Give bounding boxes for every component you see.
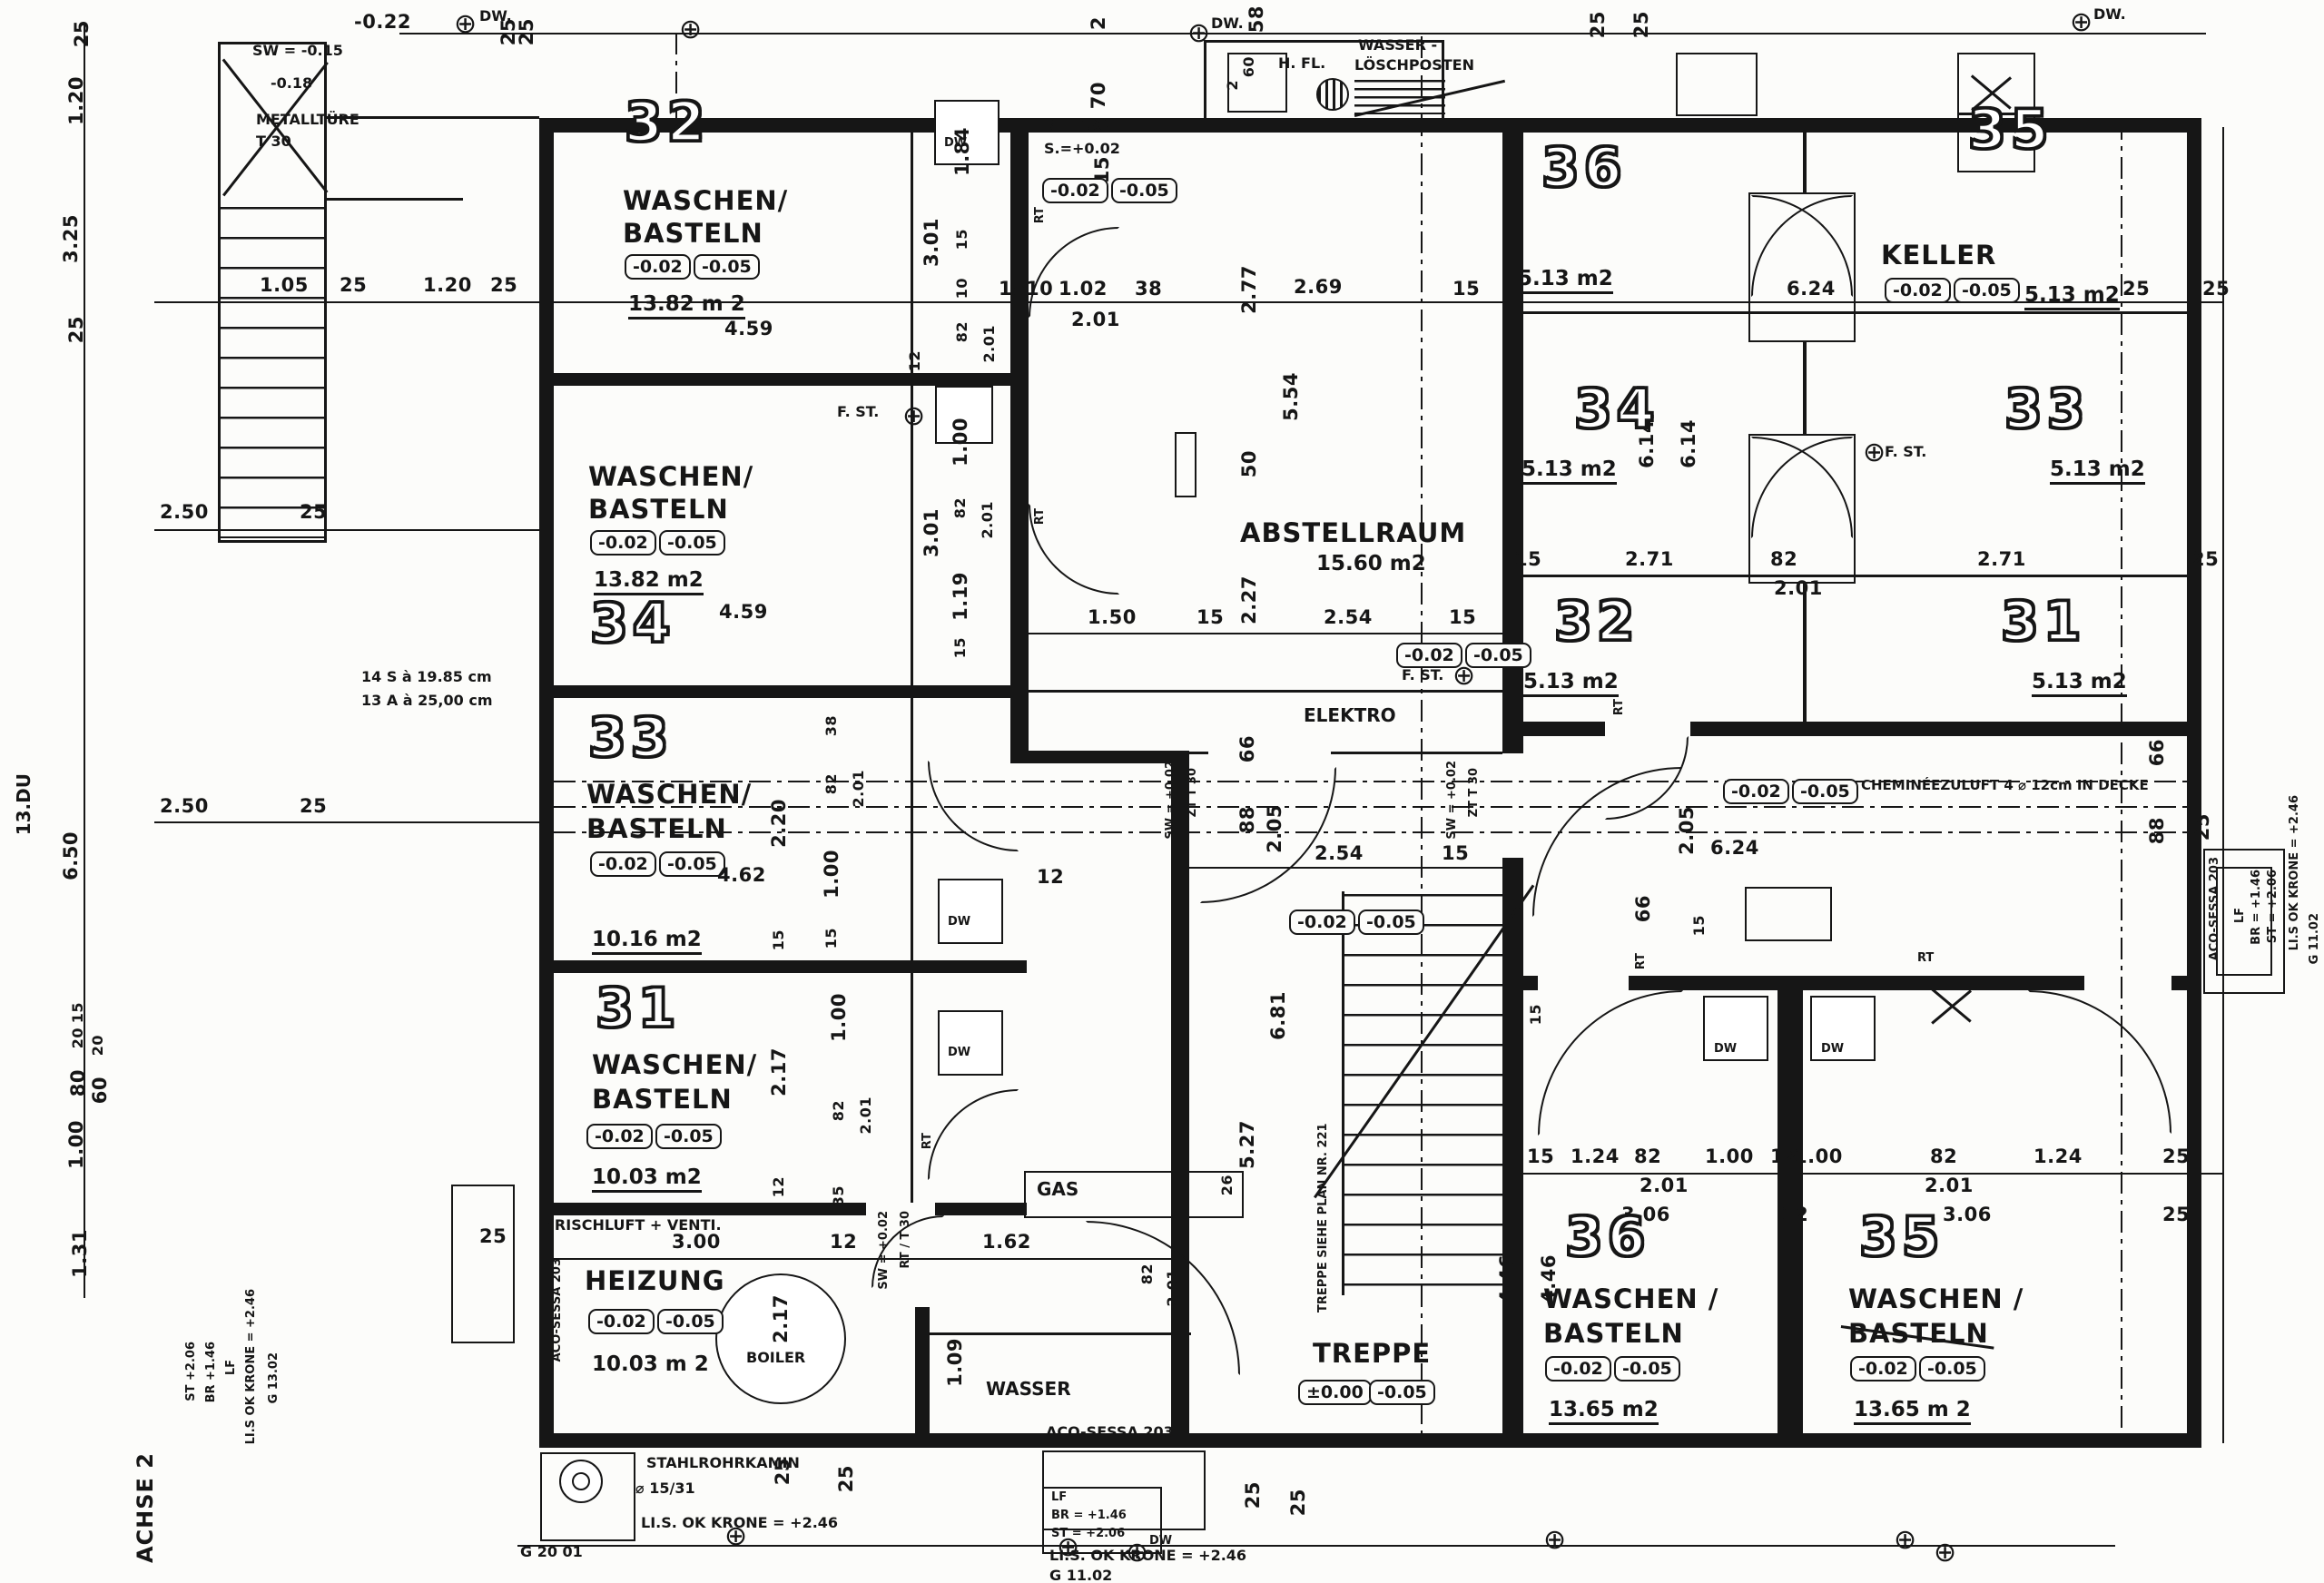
room-name: WASCHEN / bbox=[1543, 1283, 1718, 1314]
door-label: RT bbox=[1612, 699, 1626, 715]
dw-label: DW bbox=[1149, 1534, 1172, 1548]
benchmark-icon: ⊕ bbox=[1543, 1529, 1566, 1552]
room-name: BASTELN bbox=[1848, 1318, 1989, 1349]
dim-label: 15 bbox=[1527, 1145, 1554, 1167]
dim-label: 25 bbox=[2202, 278, 2230, 300]
wall bbox=[1629, 976, 2084, 990]
level-badge: -0.05 bbox=[659, 530, 725, 556]
dim-label: 15 bbox=[1196, 606, 1224, 628]
dim-label: 4.46 bbox=[1496, 1254, 1518, 1303]
dim-label: 1.05 bbox=[260, 274, 309, 296]
partition bbox=[911, 133, 913, 1203]
dim-label: 70 bbox=[1088, 82, 1109, 109]
dim-label: 25 bbox=[479, 1225, 507, 1247]
dim-label: 1.24 bbox=[2033, 1145, 2083, 1167]
dim-label: 2.01 bbox=[979, 501, 996, 538]
partition bbox=[1027, 690, 1502, 693]
appliance-label: DW bbox=[948, 1046, 970, 1059]
dim-label: 25 bbox=[300, 795, 327, 817]
bay-wall bbox=[1204, 40, 1206, 118]
dim-label: 15 bbox=[999, 278, 1026, 300]
room-name: BASTELN bbox=[1543, 1318, 1684, 1349]
dim-label: 20 bbox=[69, 1027, 86, 1048]
wall bbox=[1690, 722, 2187, 736]
wall bbox=[539, 1433, 2201, 1448]
dim-label: 15 bbox=[69, 1002, 86, 1023]
dim-label: 1.31 bbox=[69, 1229, 91, 1278]
dim-label: 2.71 bbox=[1625, 548, 1674, 570]
shaft-note: LF bbox=[2233, 908, 2247, 923]
dim-label: 6.50 bbox=[60, 831, 82, 880]
dim-line bbox=[154, 821, 539, 823]
shaft-note: BR +1.46 bbox=[204, 1342, 218, 1402]
stair-edge bbox=[1342, 891, 1344, 1295]
level-note: -0.22 bbox=[354, 11, 411, 33]
benchmark-icon: ⊕ bbox=[1894, 1529, 1916, 1552]
dim-label: 15 bbox=[953, 229, 970, 250]
stair-treads bbox=[221, 207, 324, 538]
dim-label: 6.81 bbox=[1267, 991, 1289, 1040]
door-label: SW = +0.02 bbox=[877, 1211, 891, 1290]
room-name: WASCHEN / bbox=[1848, 1283, 2024, 1314]
shaft-note: BR = +1.46 bbox=[2250, 870, 2263, 945]
dim-label: 26 bbox=[1218, 1175, 1236, 1195]
drain-icon bbox=[572, 1472, 590, 1490]
dim-label: 2.50 bbox=[160, 501, 209, 523]
dim-label: 88 bbox=[2146, 817, 2168, 844]
dim-label: 10 bbox=[1026, 278, 1053, 300]
level-badge: -0.02 bbox=[1289, 909, 1355, 935]
grid-ref: G 11.02 bbox=[1049, 1567, 1112, 1583]
dim-label: 1.00 bbox=[821, 850, 842, 899]
wall bbox=[2187, 118, 2201, 1448]
wall bbox=[539, 118, 554, 1448]
dim-label: 2.27 bbox=[1238, 575, 1260, 624]
dim-label: 25 bbox=[71, 20, 93, 47]
room-name: WASCHEN/ bbox=[623, 185, 788, 216]
dim-label: 15 bbox=[1449, 606, 1476, 628]
room-number: 31 bbox=[596, 977, 681, 1040]
wall bbox=[539, 118, 2201, 133]
dim-label: 25 bbox=[1587, 11, 1609, 38]
dim-label: 2 bbox=[1088, 16, 1109, 30]
floor-plan: ⊕ ⊕ ⊕ ⊕ ⊕ ⊕ ⊕ ⊕ ⊕ ⊕ ⊕ ⊕ ⊕ 25 1.20 3.25 2… bbox=[0, 0, 2324, 1583]
room-area: 15.60 m2 bbox=[1316, 552, 1426, 575]
fixture-note: LÖSCHPOSTEN bbox=[1354, 56, 1474, 74]
dim-label: 25 bbox=[2162, 1204, 2190, 1225]
dim-label: 2.01 bbox=[1925, 1175, 1974, 1196]
door-arc bbox=[1029, 227, 1119, 318]
room-number: 34 bbox=[590, 592, 675, 655]
appliance-label: DW bbox=[1714, 1042, 1737, 1056]
fixture-note: H. FL. bbox=[1278, 54, 1325, 72]
appliance-label: DW bbox=[948, 915, 970, 929]
shaft-note: G 13.02 bbox=[267, 1352, 281, 1403]
dim-label: 12 bbox=[1037, 866, 1064, 888]
dim-label: 12 bbox=[770, 1176, 787, 1197]
dim-label: 2.71 bbox=[1977, 548, 2026, 570]
product-note: ACO-SESSA 203 bbox=[2208, 857, 2221, 960]
dim-label: 3.25 bbox=[60, 214, 82, 263]
dim-label: 5.54 bbox=[1280, 372, 1302, 421]
room-number: 32 bbox=[1554, 590, 1640, 654]
dim-line bbox=[517, 1545, 2115, 1547]
duct-line bbox=[554, 831, 2187, 833]
door-label: ZT T 30 bbox=[1467, 768, 1481, 817]
room-number: 35 bbox=[1968, 98, 2053, 162]
dim-label: 2.17 bbox=[768, 1047, 790, 1096]
dim-label: 1.00 bbox=[1794, 1145, 1843, 1167]
dim-label: 2.01 bbox=[1071, 309, 1120, 330]
room-area: 5.13 m2 bbox=[2024, 283, 2120, 310]
benchmark-icon: ⊕ bbox=[2070, 11, 2093, 34]
level-badge: -0.05 bbox=[1792, 779, 1858, 804]
partition bbox=[1803, 133, 1807, 192]
room-area: 10.16 m2 bbox=[592, 928, 702, 955]
room-area: 10.03 m 2 bbox=[592, 1352, 709, 1376]
dim-label: 66 bbox=[1236, 735, 1258, 762]
dim-line bbox=[2222, 127, 2224, 1443]
dim-label: 25 bbox=[835, 1465, 857, 1492]
dim-label: 3.00 bbox=[672, 1231, 721, 1253]
dim-label: 5.27 bbox=[1236, 1120, 1258, 1169]
room-number: 32 bbox=[625, 91, 710, 154]
dim-label: 66 bbox=[2146, 739, 2168, 766]
level-badge: -0.02 bbox=[1396, 643, 1462, 668]
level-badge: -0.05 bbox=[1919, 1356, 1985, 1381]
dim-line bbox=[1027, 633, 1502, 634]
room-area: 5.13 m2 bbox=[2050, 457, 2145, 485]
level-note: LI.S OK KRONE = +2.46 bbox=[2288, 795, 2301, 950]
door-label: SW = +0.02 bbox=[1164, 761, 1177, 840]
dim-label: 15 bbox=[1690, 915, 1708, 936]
duct-line bbox=[554, 806, 2187, 808]
wall bbox=[539, 960, 1027, 973]
room-name: ELEKTRO bbox=[1304, 704, 1396, 726]
benchmark-icon: ⊕ bbox=[1187, 22, 1210, 45]
dim-label: 2.05 bbox=[1264, 804, 1285, 853]
chimney-note: ⌀ 15/31 bbox=[635, 1480, 695, 1497]
dim-label: 1.00 bbox=[65, 1120, 87, 1169]
dim-label: 1.09 bbox=[944, 1338, 966, 1387]
level-badge: -0.02 bbox=[1042, 178, 1108, 203]
dim-label: 6.24 bbox=[1787, 278, 1836, 300]
dim-label: 38 bbox=[1135, 278, 1162, 300]
level-badge: -0.05 bbox=[657, 1309, 724, 1334]
wall bbox=[1523, 976, 1538, 990]
axis-label: ACHSE 2 bbox=[133, 1452, 158, 1563]
partition bbox=[1803, 342, 1807, 434]
dim-label: 2.77 bbox=[1238, 265, 1260, 314]
level-badge: -0.02 bbox=[625, 254, 691, 280]
dim-label: 60 bbox=[89, 1077, 111, 1104]
dw-label: DW. bbox=[2093, 5, 2126, 23]
wall bbox=[539, 1203, 866, 1215]
level-badge: -0.05 bbox=[694, 254, 760, 280]
level-note: LI.S. OK KRONE = +2.46 bbox=[1049, 1547, 1246, 1564]
room-name: WASSER bbox=[986, 1378, 1071, 1400]
wall bbox=[1502, 858, 1523, 1448]
room-area: 13.82 m 2 bbox=[628, 292, 745, 320]
dim-label: 38 bbox=[822, 715, 840, 736]
level-badge: -0.02 bbox=[590, 851, 656, 877]
vent-shaft bbox=[1745, 887, 1832, 941]
wall bbox=[539, 373, 1027, 386]
dim-label: 15 bbox=[951, 637, 969, 658]
dim-label: 20 bbox=[89, 1035, 106, 1056]
dim-label: 3.06 bbox=[1943, 1204, 1992, 1225]
dim-label: 2.17 bbox=[770, 1294, 792, 1343]
dim-line bbox=[1507, 1173, 2222, 1175]
dim-label: 2.05 bbox=[1676, 806, 1698, 855]
hydrant-icon bbox=[1316, 78, 1349, 111]
shaft-note: ST = +2.06 bbox=[1051, 1527, 1125, 1540]
dim-label: 12 bbox=[1781, 1204, 1808, 1225]
room-area: 5.13 m2 bbox=[1523, 670, 1619, 697]
dim-label: 82 bbox=[830, 1100, 847, 1121]
stair-note: 14 S à 19.85 cm bbox=[361, 668, 492, 685]
partition bbox=[1331, 752, 1502, 754]
dim-label: 12 bbox=[830, 1231, 857, 1253]
room-number: 36 bbox=[1565, 1205, 1650, 1269]
dim-label: 15 bbox=[770, 929, 787, 950]
level-badge: ±0.00 bbox=[1298, 1380, 1372, 1405]
door-note: METALLTÜRE bbox=[256, 111, 359, 128]
room-name: BASTELN bbox=[592, 1084, 733, 1115]
level-badge: -0.05 bbox=[659, 851, 725, 877]
room-number: 31 bbox=[2001, 590, 2086, 654]
dim-label: 2.01 bbox=[1774, 577, 1823, 599]
benchmark-icon: ⊕ bbox=[679, 18, 702, 42]
dim-label: 25 bbox=[2162, 1145, 2190, 1167]
room-area: 5.13 m2 bbox=[1518, 267, 1613, 294]
dim-label: 66 bbox=[1632, 895, 1654, 922]
level-note: S.=+0.02 bbox=[1044, 140, 1120, 157]
appliance-label: DW bbox=[1821, 1042, 1844, 1056]
dim-label: 1.00 bbox=[828, 993, 850, 1042]
shaft-note: ST +2.06 bbox=[184, 1342, 198, 1401]
level-note: LI.S. OK KRONE = +2.46 bbox=[641, 1514, 838, 1531]
dim-label: 82 bbox=[1138, 1263, 1156, 1284]
room-name: BASTELN bbox=[588, 494, 729, 525]
door-label: ZT T 30 bbox=[1186, 768, 1199, 817]
dim-label: 4.59 bbox=[724, 318, 773, 339]
washing-machine bbox=[938, 1010, 1003, 1076]
dim-label: 35 bbox=[830, 1185, 847, 1206]
door-label: RT bbox=[1033, 508, 1047, 525]
room-name: GAS bbox=[1037, 1178, 1078, 1200]
level-badge: -0.05 bbox=[655, 1124, 722, 1149]
dim-label: 25 bbox=[2191, 548, 2219, 570]
dim-label: 3.01 bbox=[921, 508, 942, 557]
dim-label: 1.24 bbox=[1571, 1145, 1620, 1167]
dim-line bbox=[84, 25, 85, 1298]
dim-label: 2.20 bbox=[768, 799, 790, 848]
fixture-note: WASSER - bbox=[1358, 36, 1437, 54]
benchmark-icon: ⊕ bbox=[1863, 441, 1886, 465]
dim-label: 2.69 bbox=[1294, 276, 1343, 298]
dim-label: 10 bbox=[953, 278, 970, 299]
dim-label: 25 bbox=[340, 274, 367, 296]
stair-treads bbox=[1344, 894, 1502, 1293]
dim-label: 2.01 bbox=[1164, 1269, 1181, 1306]
benchmark-icon: ⊕ bbox=[902, 405, 925, 428]
room-area: 10.03 m2 bbox=[592, 1165, 702, 1193]
door-arc bbox=[1086, 1221, 1240, 1375]
dim-label: 82 bbox=[822, 773, 840, 794]
level-badge: -0.02 bbox=[586, 1124, 653, 1149]
annex-wall bbox=[218, 540, 327, 543]
door-note: T 30 bbox=[256, 133, 291, 150]
fst-label: F. ST. bbox=[1402, 666, 1443, 683]
shaft-note: LF bbox=[224, 1360, 238, 1375]
room-area: 13.65 m2 bbox=[1549, 1398, 1659, 1425]
level-note: -0.18 bbox=[271, 74, 312, 92]
dim-label: 80 bbox=[67, 1069, 89, 1096]
dim-label: 82 bbox=[953, 321, 970, 342]
dim-label: 50 bbox=[1238, 450, 1260, 477]
dim-label: 2.01 bbox=[850, 770, 867, 807]
product-note: ACO-SESSA 203 bbox=[550, 1258, 564, 1362]
level-badge: -0.02 bbox=[588, 1309, 655, 1334]
product-note: ACO-SESSA 203 bbox=[1046, 1423, 1174, 1440]
dim-label: 58 bbox=[1246, 5, 1267, 33]
dim-label: 25 bbox=[2191, 813, 2213, 841]
door-note: RT. T 30 bbox=[1044, 116, 1108, 133]
wall bbox=[2171, 976, 2187, 990]
room-number: 36 bbox=[1541, 136, 1627, 200]
door-label: RT bbox=[1917, 951, 1934, 965]
grid-ref: G 20 01 bbox=[520, 1543, 583, 1560]
dim-label: 15 bbox=[1442, 842, 1469, 864]
room-number: 34 bbox=[1574, 378, 1659, 441]
level-badge: -0.02 bbox=[1850, 1356, 1916, 1381]
dim-label: 82 bbox=[1770, 548, 1797, 570]
dim-label: 12 bbox=[906, 350, 923, 371]
dim-label: 82 bbox=[951, 497, 969, 518]
dim-label: 2.54 bbox=[1315, 842, 1364, 864]
level-badge: -0.05 bbox=[1111, 178, 1177, 203]
level-badge: -0.02 bbox=[1885, 278, 1951, 303]
dim-label: 15 bbox=[1452, 278, 1480, 300]
level-badge: -0.02 bbox=[590, 530, 656, 556]
door-label: RT bbox=[921, 1133, 934, 1149]
door-label: RT bbox=[1033, 207, 1047, 223]
dim-label: 2.54 bbox=[1324, 606, 1373, 628]
dim-label: 2.01 bbox=[980, 325, 998, 362]
dim-label: 1.50 bbox=[1088, 606, 1137, 628]
dim-label: 25 bbox=[1242, 1481, 1264, 1509]
wall bbox=[915, 1307, 930, 1433]
level-badge: -0.05 bbox=[1369, 1380, 1435, 1405]
dim-label: 2 bbox=[1224, 80, 1241, 91]
dim-label: 15 bbox=[1514, 548, 1541, 570]
dim-label: 6.14 bbox=[1678, 419, 1699, 468]
wall bbox=[1523, 722, 1605, 736]
room-name: BASTELN bbox=[623, 218, 763, 249]
level-badge: -0.05 bbox=[1465, 643, 1531, 668]
shaft-note: ST = +2.06 bbox=[2266, 870, 2280, 943]
level-note: SW = -0.15 bbox=[252, 42, 343, 59]
dim-label: 82 bbox=[1634, 1145, 1661, 1167]
dim-label: 1.00 bbox=[950, 418, 971, 467]
door-arc bbox=[928, 1089, 1019, 1180]
grid-ref: G 11.02 bbox=[2308, 913, 2321, 964]
level-badge: -0.02 bbox=[1723, 779, 1789, 804]
dim-label: 1.00 bbox=[1705, 1145, 1754, 1167]
light-shaft bbox=[451, 1185, 515, 1343]
door-label: RT / T 30 bbox=[899, 1211, 912, 1269]
dim-label: 2.01 bbox=[1640, 1175, 1689, 1196]
room-area: 5.13 m2 bbox=[1521, 457, 1617, 485]
vent-shaft bbox=[1676, 53, 1758, 116]
dim-label: 25 bbox=[1630, 11, 1652, 38]
dim-label: 25 bbox=[490, 274, 517, 296]
dim-label: 4.62 bbox=[717, 864, 766, 886]
door-arc bbox=[1538, 990, 1683, 1136]
stair-ref-note: TREPPE SIEHE PLAN NR. 221 bbox=[1316, 1013, 1330, 1313]
washing-machine bbox=[938, 879, 1003, 944]
room-number: 33 bbox=[2004, 378, 2090, 441]
room-name: HEIZUNG bbox=[585, 1265, 725, 1296]
dim-label: 1.20 bbox=[65, 76, 87, 125]
dim-label: 15 bbox=[1527, 1004, 1544, 1025]
fst-label: F. ST. bbox=[1885, 443, 1926, 460]
pillar bbox=[1175, 432, 1196, 497]
dim-label: 25 bbox=[65, 316, 87, 343]
room-number: 35 bbox=[1859, 1205, 1945, 1269]
dim-label: 2.01 bbox=[857, 1096, 874, 1134]
dim-label: 82 bbox=[1930, 1145, 1957, 1167]
room-name: WASCHEN/ bbox=[592, 1049, 757, 1080]
room-name: BASTELN bbox=[586, 813, 727, 844]
dim-label: 25 bbox=[1287, 1489, 1309, 1516]
benchmark-icon: ⊕ bbox=[1934, 1541, 1956, 1565]
room-number: 33 bbox=[588, 706, 674, 770]
wall-line bbox=[327, 198, 463, 201]
benchmark-icon: ⊕ bbox=[454, 13, 477, 36]
door-arc bbox=[2028, 990, 2171, 1134]
stair-note: 13 A à 25,00 cm bbox=[361, 692, 493, 709]
level-badge: -0.05 bbox=[1358, 909, 1424, 935]
wall bbox=[539, 685, 1027, 698]
dim-label: 25 bbox=[2122, 278, 2150, 300]
room-name: WASCHEN/ bbox=[588, 461, 753, 492]
dim-label: 88 bbox=[1236, 806, 1258, 833]
wall bbox=[935, 1203, 1027, 1215]
duct-note: CHEMINÉEZULUFT 4 ⌀ 12cm IN DECKE bbox=[1861, 777, 2149, 793]
dim-label: 1.19 bbox=[950, 572, 971, 621]
dw-label: DW. bbox=[1211, 15, 1244, 32]
wall bbox=[1010, 118, 1029, 763]
door-arc bbox=[928, 761, 1019, 851]
axis-label: 13.DU bbox=[13, 773, 34, 835]
room-name: ABSTELLRAUM bbox=[1240, 517, 1466, 548]
dim-label: 3.01 bbox=[921, 218, 942, 267]
room-area: 13.65 m 2 bbox=[1854, 1398, 1971, 1425]
dim-label: 1.02 bbox=[1059, 278, 1108, 300]
dim-label: 1.62 bbox=[982, 1231, 1031, 1253]
fixture-label: BOILER bbox=[746, 1349, 805, 1366]
fst-label: F. ST. bbox=[837, 403, 879, 420]
shaft-note: LF bbox=[1051, 1490, 1067, 1504]
dim-label: 25 bbox=[300, 501, 327, 523]
dim-line bbox=[399, 33, 2206, 34]
dim-label: 1.84 bbox=[951, 127, 973, 176]
door-label: SW = +0.02 bbox=[1445, 761, 1459, 840]
level-badge: -0.05 bbox=[1954, 278, 2020, 303]
partition bbox=[1027, 752, 1208, 754]
